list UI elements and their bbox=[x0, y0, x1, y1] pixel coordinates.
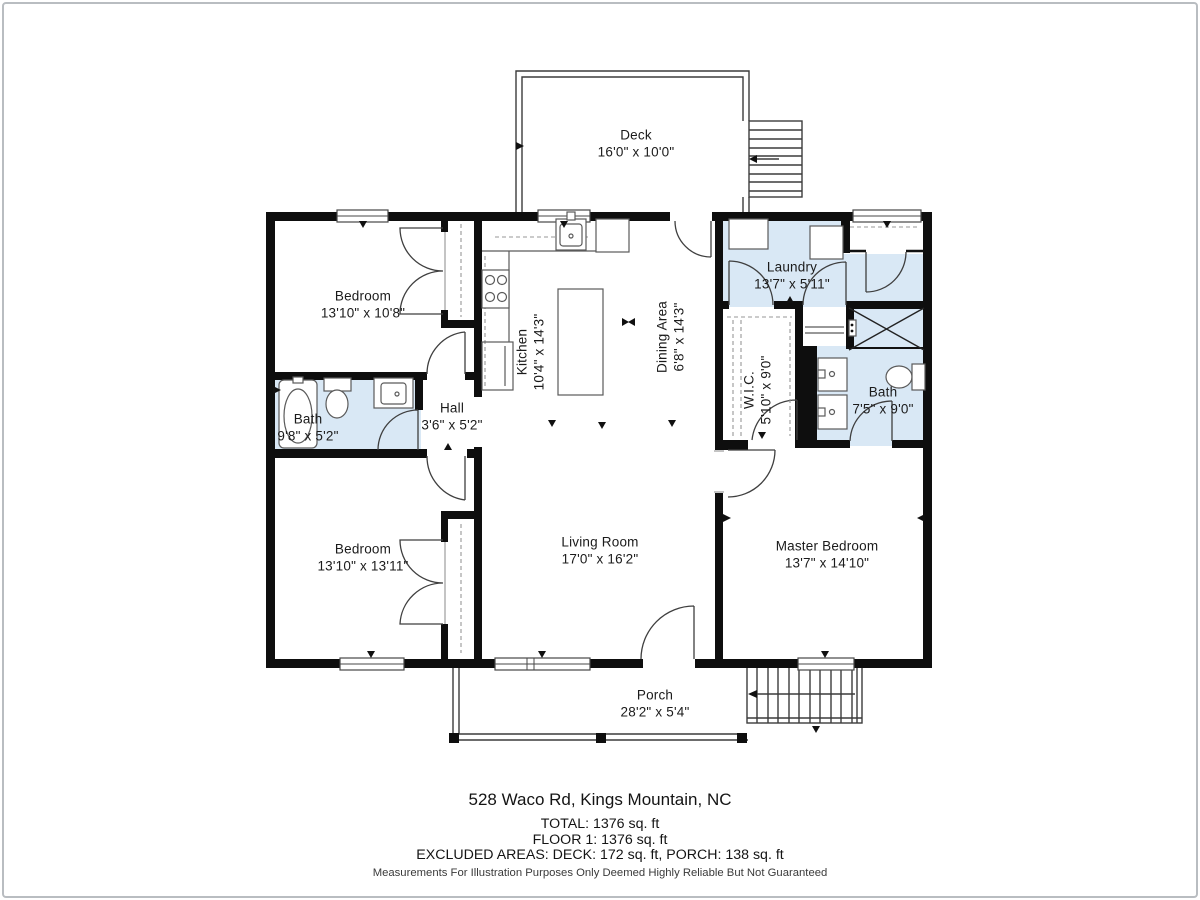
room-name: Bath bbox=[852, 385, 913, 402]
room-dims: 13'10" x 10'8" bbox=[321, 305, 405, 322]
room-dims: 13'7" x 14'10" bbox=[776, 555, 879, 572]
floor-plan-page: Deck 16'0" x 10'0" Bedroom 13'10" x 10'8… bbox=[0, 0, 1200, 900]
room-label-bath-1: Bath 9'8" x 5'2" bbox=[277, 412, 338, 445]
disclaimer-line: Measurements For Illustration Purposes O… bbox=[0, 867, 1200, 879]
room-name: Master Bedroom bbox=[776, 539, 879, 556]
room-name: Kitchen bbox=[515, 314, 532, 391]
room-label-master-bedroom: Master Bedroom 13'7" x 14'10" bbox=[776, 539, 879, 572]
refrigerator bbox=[596, 219, 629, 252]
room-name: Deck bbox=[598, 128, 675, 145]
excluded-areas-line: EXCLUDED AREAS: DECK: 172 sq. ft, PORCH:… bbox=[0, 847, 1200, 863]
room-name: Bedroom bbox=[317, 542, 408, 559]
room-label-deck: Deck 16'0" x 10'0" bbox=[598, 128, 675, 161]
room-name: Dining Area bbox=[655, 301, 672, 373]
room-label-hall: Hall 3'6" x 5'2" bbox=[421, 401, 482, 434]
room-dims: 16'0" x 10'0" bbox=[598, 144, 675, 161]
room-dims: 6'8" x 14'3" bbox=[671, 301, 688, 373]
room-dims: 3'6" x 5'2" bbox=[421, 417, 482, 434]
room-dims: 10'4" x 14'3" bbox=[531, 314, 548, 391]
room-name: Bath bbox=[277, 412, 338, 429]
total-area-line: TOTAL: 1376 sq. ft bbox=[0, 816, 1200, 832]
room-name: Living Room bbox=[561, 535, 638, 552]
room-label-bedroom-2: Bedroom 13'10" x 13'11" bbox=[317, 542, 408, 575]
room-dims: 17'0" x 16'2" bbox=[561, 551, 638, 568]
room-name: Porch bbox=[621, 688, 690, 705]
room-dims: 28'2" x 5'4" bbox=[621, 704, 690, 721]
room-label-living-room: Living Room 17'0" x 16'2" bbox=[561, 535, 638, 568]
room-dims: 5'10" x 9'0" bbox=[758, 356, 775, 425]
room-label-dining-area: Dining Area 6'8" x 14'3" bbox=[655, 301, 688, 373]
room-label-bath-2: Bath 7'5" x 9'0" bbox=[852, 385, 913, 418]
room-label-bedroom-1: Bedroom 13'10" x 10'8" bbox=[321, 289, 405, 322]
room-dims: 13'10" x 13'11" bbox=[317, 558, 408, 575]
kitchen-island bbox=[558, 289, 603, 395]
room-label-kitchen: Kitchen 10'4" x 14'3" bbox=[515, 314, 548, 391]
stove bbox=[482, 270, 509, 308]
deck-stairs bbox=[749, 121, 802, 197]
porch-stairs bbox=[747, 665, 862, 723]
room-name: W.I.C. bbox=[742, 356, 759, 425]
room-dims: 13'7" x 5'11" bbox=[754, 276, 830, 293]
room-name: Hall bbox=[421, 401, 482, 418]
room-label-laundry: Laundry 13'7" x 5'11" bbox=[754, 260, 830, 293]
dryer bbox=[810, 226, 843, 259]
address-line: 528 Waco Rd, Kings Mountain, NC bbox=[0, 790, 1200, 810]
washer bbox=[729, 219, 768, 249]
bathroom-sink bbox=[374, 378, 413, 408]
kitchen-counter bbox=[482, 237, 629, 390]
floor-area-line: FLOOR 1: 1376 sq. ft bbox=[0, 832, 1200, 848]
room-name: Laundry bbox=[754, 260, 830, 277]
room-dims: 7'5" x 9'0" bbox=[852, 401, 913, 418]
room-dims: 9'8" x 5'2" bbox=[277, 428, 338, 445]
room-label-porch: Porch 28'2" x 5'4" bbox=[621, 688, 690, 721]
room-name: Bedroom bbox=[321, 289, 405, 306]
room-label-wic: W.I.C. 5'10" x 9'0" bbox=[742, 356, 775, 425]
